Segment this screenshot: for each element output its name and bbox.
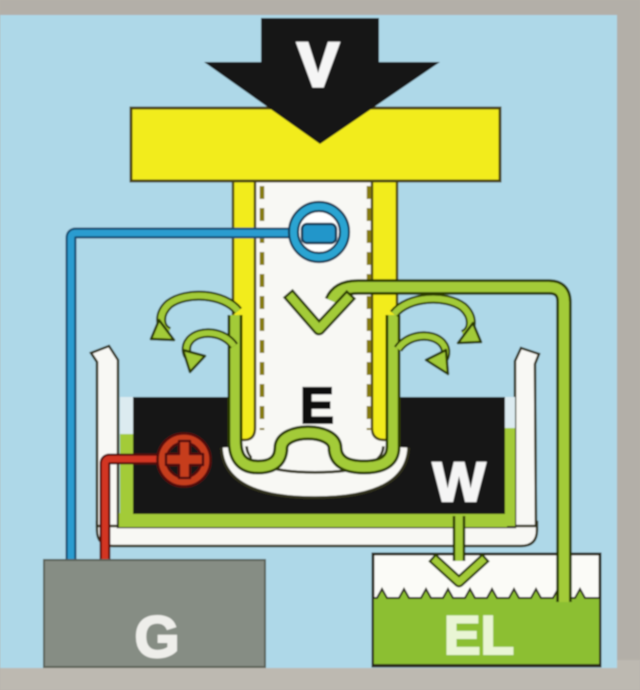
svg-text:G: G bbox=[134, 605, 179, 670]
svg-text:W: W bbox=[433, 450, 486, 513]
svg-text:E: E bbox=[300, 377, 334, 434]
svg-text:V: V bbox=[297, 31, 338, 100]
svg-text:EL: EL bbox=[444, 604, 514, 666]
